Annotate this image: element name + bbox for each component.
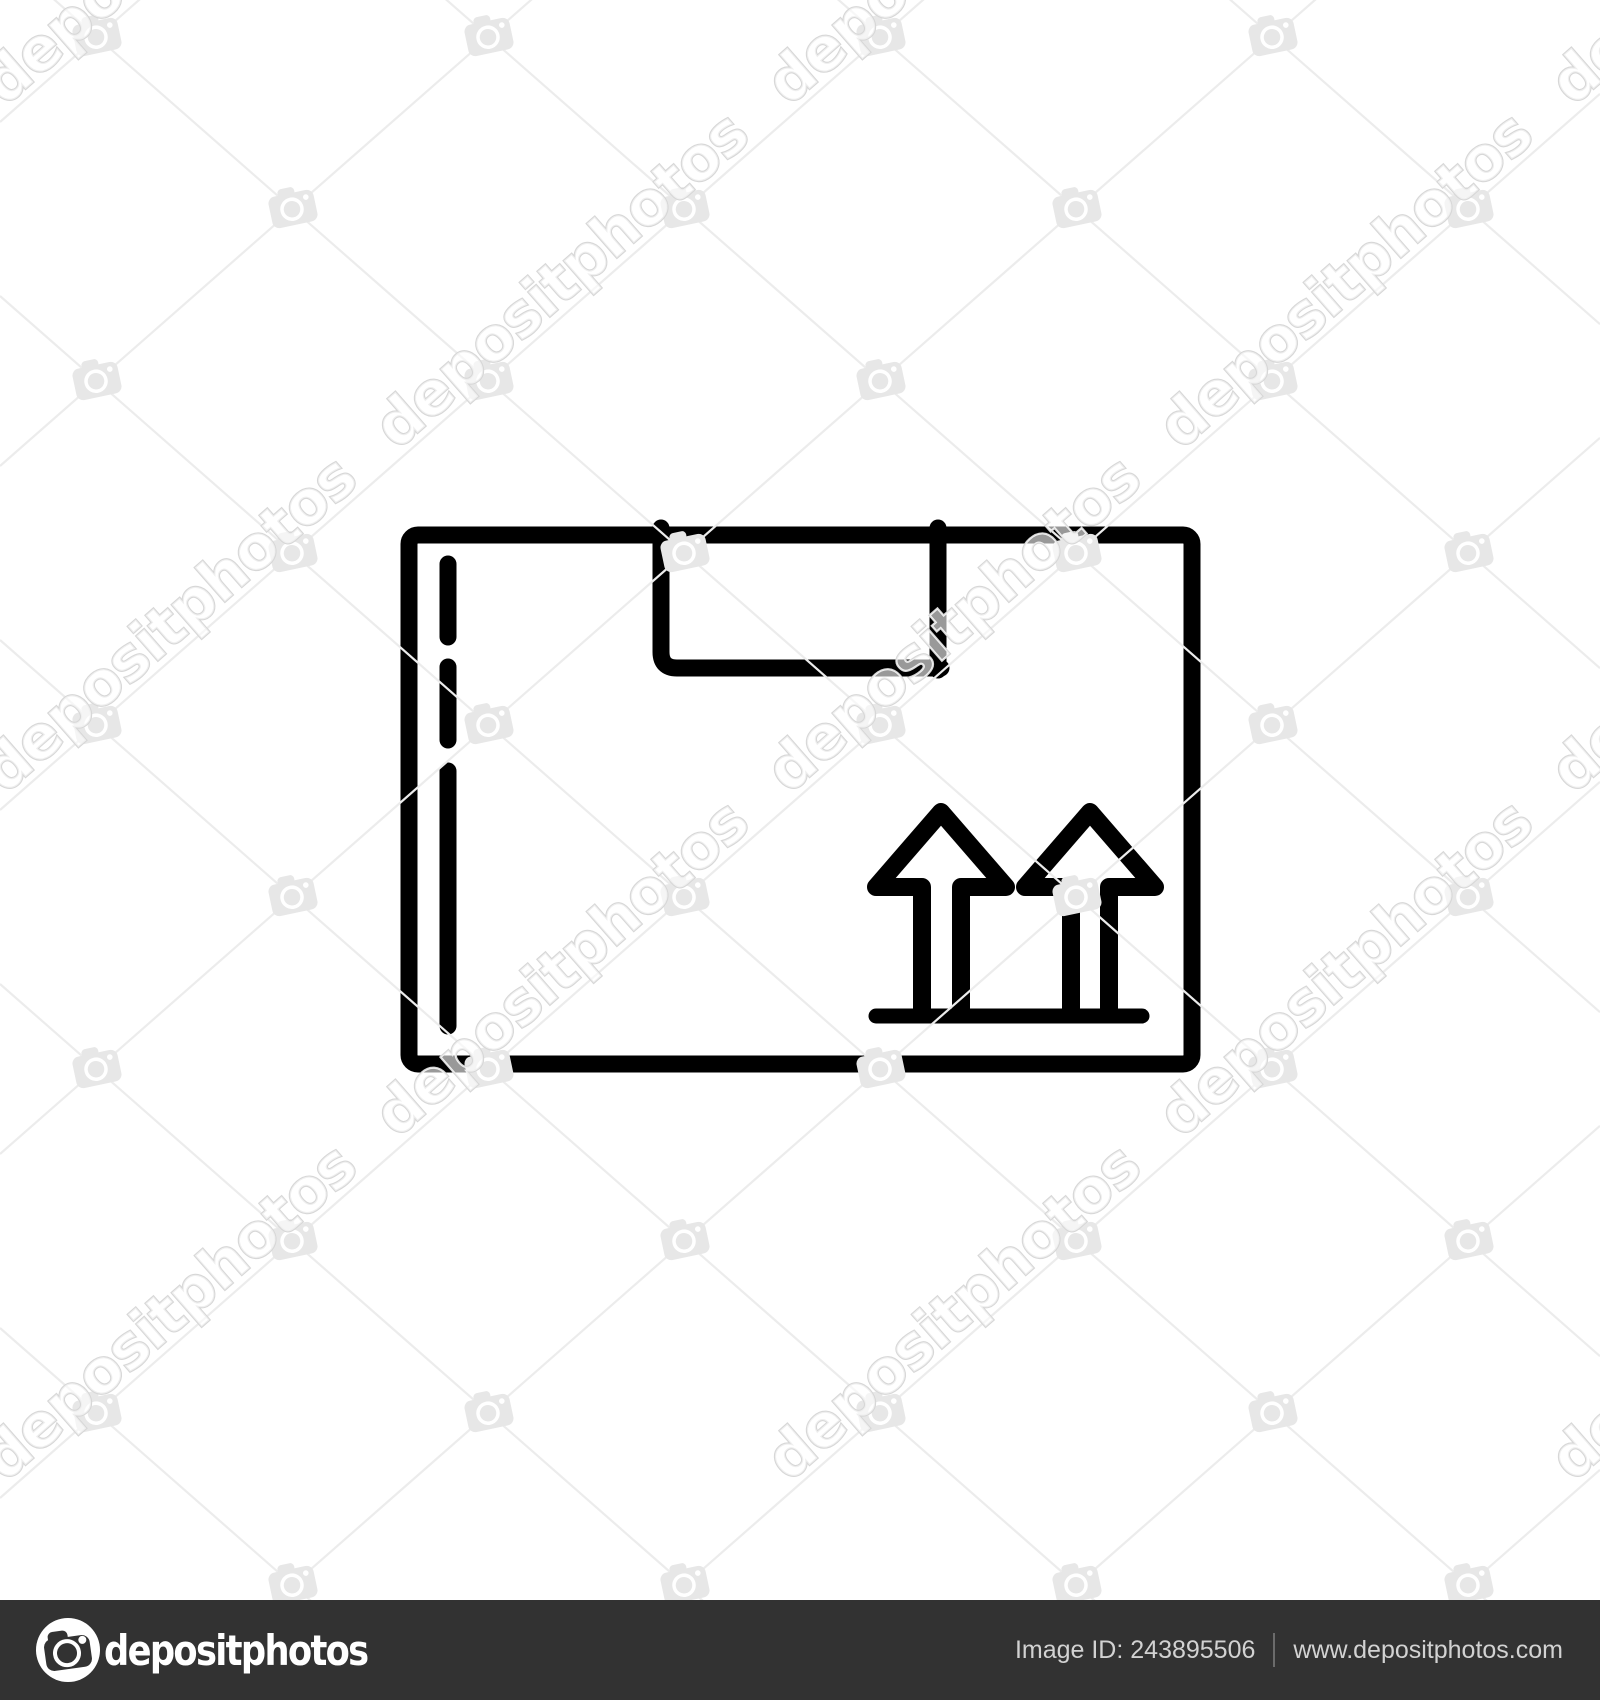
image-id-label: Image ID: 243895506 xyxy=(1015,1636,1255,1665)
camera-watermark-icon xyxy=(1246,699,1299,746)
camera-watermark-icon xyxy=(1442,527,1495,574)
watermark-text: depositphotos xyxy=(361,98,762,462)
stock-image-page: { "page": {"width": 1600, "height": 1700… xyxy=(0,0,1600,1700)
watermark-text: depositphotos xyxy=(753,1130,1154,1494)
watermark-text: depositphotos xyxy=(1537,0,1600,118)
watermark-text: depositphotos xyxy=(1145,786,1546,1150)
camera-watermark-icon xyxy=(658,1215,711,1262)
logo-wordmark: depositphotos xyxy=(104,1626,368,1675)
camera-watermark-icon xyxy=(1442,1559,1495,1606)
camera-watermark-icon xyxy=(1050,183,1103,230)
camera-watermark-icon xyxy=(462,1387,515,1434)
watermark-text: depositphotos xyxy=(0,0,370,118)
watermark-text: depositphotos xyxy=(1145,98,1546,462)
camera-watermark-icon xyxy=(266,183,319,230)
depositphotos-logo: depositphotos xyxy=(26,1608,418,1692)
stock-image-canvas: depositphotosdepositphotosdepositphotosd… xyxy=(0,0,1600,1700)
footer-bar: depositphotos Image ID: 243895506 www.de… xyxy=(0,1600,1600,1700)
watermark-text: depositphotos xyxy=(0,442,370,806)
footer-divider xyxy=(1273,1633,1275,1667)
camera-watermark-icon xyxy=(854,355,907,402)
camera-watermark-icon xyxy=(70,1043,123,1090)
camera-watermark-icon xyxy=(1050,1559,1103,1606)
camera-watermark-icon xyxy=(1442,1215,1495,1262)
camera-watermark-icon xyxy=(266,1559,319,1606)
camera-logo-icon xyxy=(26,1608,110,1692)
website-url: www.depositphotos.com xyxy=(1293,1636,1563,1665)
camera-watermark-icon xyxy=(70,355,123,402)
watermark-text: depositphotos xyxy=(1537,442,1600,806)
watermark-text: depositphotos xyxy=(0,1130,370,1494)
watermark-text: depositphotos xyxy=(1537,1130,1600,1494)
camera-watermark-icon xyxy=(658,1559,711,1606)
camera-watermark-icon xyxy=(1246,1387,1299,1434)
camera-watermark-icon xyxy=(462,11,515,58)
camera-watermark-icon xyxy=(266,871,319,918)
camera-watermark-icon xyxy=(1246,11,1299,58)
